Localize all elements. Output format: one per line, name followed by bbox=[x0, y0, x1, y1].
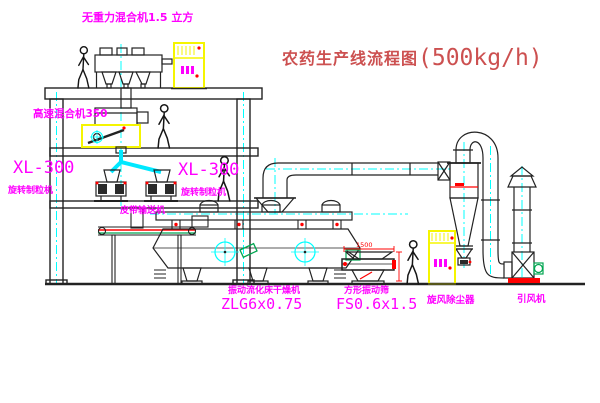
person-figure bbox=[158, 105, 169, 148]
fan-base bbox=[508, 278, 540, 283]
cad-drawing-canvas: 无重力混合机1.5 立方 农药生产线流程图(500kg/h) 高速混合机350 … bbox=[0, 0, 600, 403]
granulator-right bbox=[144, 170, 178, 201]
label-fan: 引风机 bbox=[517, 295, 546, 305]
exhaust-duct bbox=[254, 163, 438, 212]
title-text: 农药生产线流程图 bbox=[282, 49, 418, 68]
mixer-down-chute bbox=[121, 88, 131, 108]
label-high-speed-mixer: 高速混合机350 bbox=[33, 109, 107, 120]
control-cabinet-ground bbox=[426, 231, 458, 284]
riser-pipe bbox=[456, 132, 504, 278]
person-figure bbox=[78, 47, 89, 88]
square-vibrating-sieve bbox=[342, 246, 402, 284]
mid-slab bbox=[50, 148, 258, 156]
label-sieve-dimension: 1500 bbox=[356, 242, 373, 249]
top-slab bbox=[45, 88, 262, 99]
label-gravity-free-mixer: 无重力混合机1.5 立方 bbox=[82, 12, 193, 23]
label-belt-conveyor: 皮带输送机 bbox=[120, 207, 165, 216]
induced-draft-fan bbox=[504, 252, 543, 283]
label-granulator-right-name: 旋转制粒机 bbox=[181, 189, 226, 198]
label-granulator-left-name: 旋转制粒机 bbox=[8, 187, 53, 196]
control-cabinet-top bbox=[171, 43, 207, 89]
label-cyclone: 旋风除尘器 bbox=[427, 296, 475, 306]
label-sieve-model: FS0.6x1.5 bbox=[336, 297, 417, 312]
granulator-left bbox=[94, 170, 128, 201]
label-granulator-right-model: XL-300 bbox=[178, 162, 239, 179]
drawing-title: 农药生产线流程图(500kg/h) bbox=[282, 46, 543, 69]
title-capacity: (500kg/h) bbox=[418, 45, 543, 71]
dryer-top-ports bbox=[200, 201, 340, 213]
label-granulator-left-model: XL-300 bbox=[13, 160, 74, 177]
person-figure bbox=[407, 241, 418, 284]
label-dryer-model: ZLG6x0.75 bbox=[221, 297, 302, 312]
dryer-motor bbox=[240, 244, 257, 258]
fluid-bed-dryer bbox=[153, 201, 360, 285]
cyclone-dust-collector bbox=[438, 150, 481, 265]
belt-conveyor bbox=[98, 208, 208, 284]
